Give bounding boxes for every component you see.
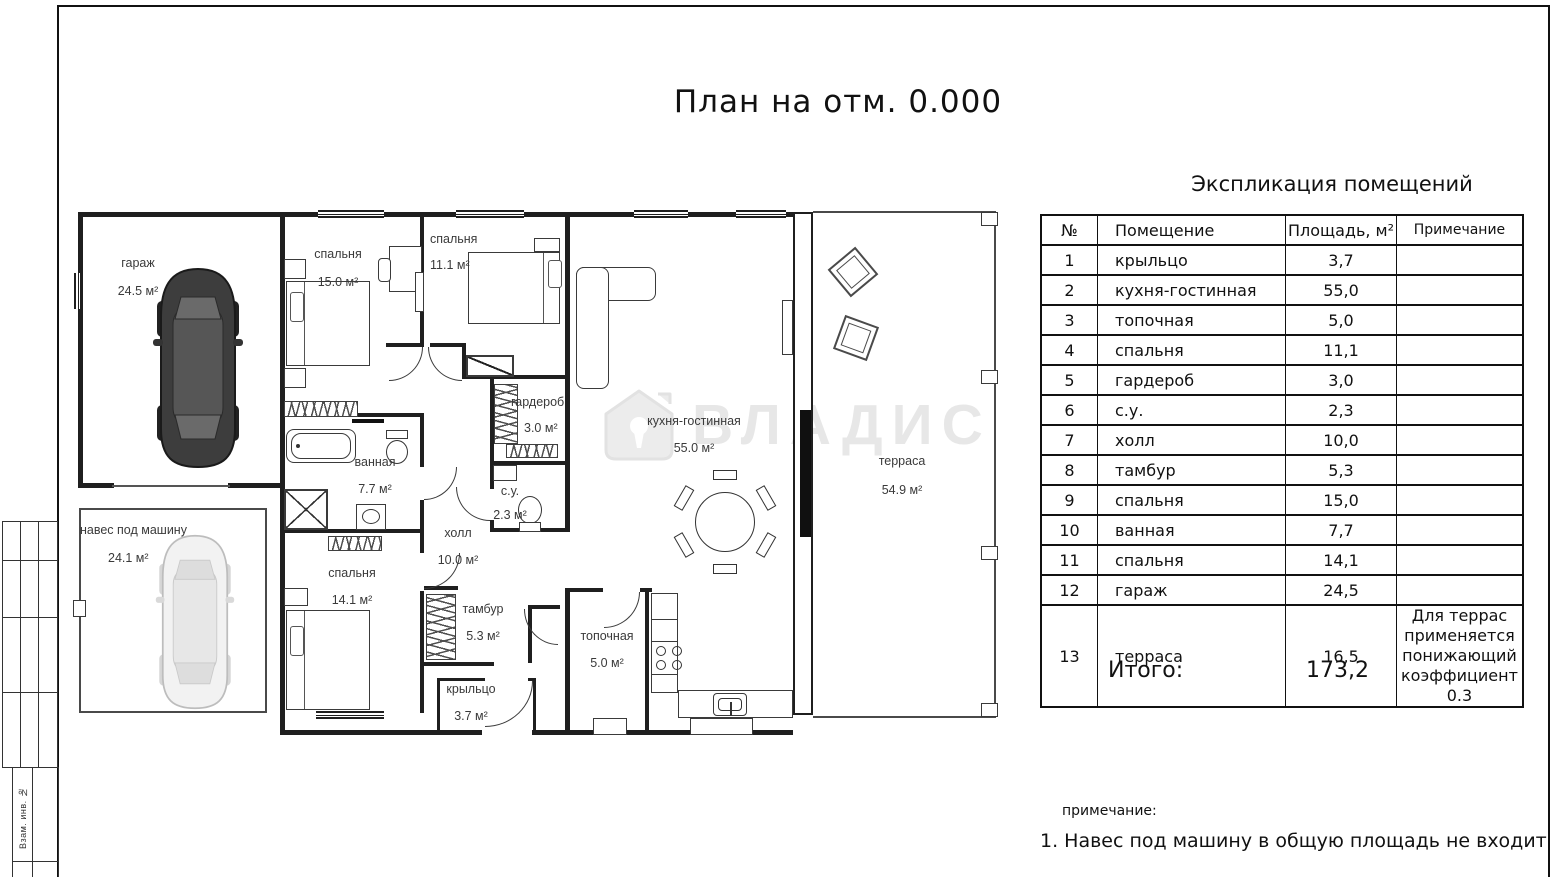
cell-room: тамбур	[1098, 455, 1286, 485]
cell-area: 14,1	[1286, 545, 1397, 575]
room-name: с.у.	[501, 485, 519, 498]
cell-num: 8	[1041, 455, 1098, 485]
wall-bath-right-a	[420, 413, 424, 467]
garage-window	[74, 273, 82, 309]
dining-chair-2	[713, 564, 737, 574]
terrace-column-3	[981, 546, 998, 560]
dining-chair-6	[674, 532, 695, 558]
note-line: 1. Навес под машину в общую площадь не в…	[1040, 830, 1547, 852]
wall-porch-right	[533, 680, 536, 730]
table-row: 2 кухня-гостинная 55,0	[1041, 275, 1523, 305]
kitchen-sink	[713, 693, 747, 716]
total-label: Итого:	[1108, 658, 1183, 683]
note-label: примечание:	[1062, 803, 1157, 819]
cell-area: 24,5	[1286, 575, 1397, 605]
table-row: 7 холл 10,0	[1041, 425, 1523, 455]
hall-cabinet	[466, 355, 514, 377]
bed-15-pillow	[290, 292, 304, 322]
dining-chair-5	[756, 532, 777, 558]
dining-chair-3	[756, 485, 777, 511]
bed-14-headboard	[304, 611, 305, 709]
room-name: спальня	[328, 567, 375, 580]
step-kitchen	[690, 718, 753, 735]
garage-wall-bottom-b	[228, 483, 285, 488]
cell-area: 15,0	[1286, 485, 1397, 515]
room-area: 2.3 м²	[493, 509, 527, 522]
table-row: 1 крыльцо 3,7	[1041, 245, 1523, 275]
window-kitchen-b	[736, 210, 786, 218]
page-title: План на отм. 0.000	[638, 84, 1038, 120]
cell-room: кухня-гостинная	[1098, 275, 1286, 305]
door-arc-boiler	[604, 592, 640, 628]
bath-pocket-door	[352, 419, 384, 423]
table-row: 9 спальня 15,0	[1041, 485, 1523, 515]
terrace-chair-1	[828, 247, 879, 298]
room-name: тамбур	[463, 603, 504, 616]
room-name: холл	[444, 527, 471, 540]
cell-num: 3	[1041, 305, 1098, 335]
room-name: топочная	[580, 630, 633, 643]
room-area: 10.0 м²	[438, 554, 479, 567]
cell-area: 55,0	[1286, 275, 1397, 305]
cell-note	[1397, 365, 1523, 395]
stamp-box-rule	[13, 861, 58, 862]
kitchen-sink-tap	[730, 702, 732, 716]
room-label-carport: навес под машину 24.1 м²	[80, 524, 210, 564]
room-name: ванная	[355, 456, 396, 469]
nightstand-15b	[284, 368, 306, 388]
wardrobe-bed15	[284, 401, 358, 417]
wall-bed14-right-b	[420, 591, 424, 713]
cell-area: 16,5	[1286, 605, 1397, 707]
car-garage	[153, 267, 243, 469]
col-header-note: Примечание	[1397, 215, 1523, 245]
bed-14	[286, 610, 370, 710]
cell-note	[1397, 335, 1523, 365]
room-area: 11.1 м²	[430, 259, 470, 272]
table-row: 8 тамбур 5,3	[1041, 455, 1523, 485]
cell-num: 5	[1041, 365, 1098, 395]
terrace-edge-right	[994, 211, 996, 718]
room-label-garage: гараж 24.5 м²	[104, 257, 172, 297]
room-area: 7.7 м²	[358, 483, 392, 496]
room-label-boiler: топочная 5.0 м²	[577, 630, 637, 669]
dining-chair-1	[713, 470, 737, 480]
drawing-sheet: Взам. инв. № План на отм. 0.000 ВЛАДИС	[0, 0, 1556, 877]
col-header-num: №	[1041, 215, 1098, 245]
step-boiler	[593, 718, 627, 735]
table-row: 13 терраса 16,5 Для террас применяется п…	[1041, 605, 1523, 707]
cell-num: 10	[1041, 515, 1098, 545]
cell-note	[1397, 575, 1523, 605]
tv-console	[782, 300, 793, 355]
cell-num: 12	[1041, 575, 1098, 605]
wall-porch-top-a	[437, 678, 485, 681]
nightstand-14	[284, 588, 308, 606]
cell-num: 11	[1041, 545, 1098, 575]
cell-room: топочная	[1098, 305, 1286, 335]
window-bedroom14	[316, 711, 384, 719]
table-row: 6 с.у. 2,3	[1041, 395, 1523, 425]
porch-entry-opening	[482, 730, 532, 735]
shower	[284, 489, 328, 530]
room-area: 15.0 м²	[318, 276, 359, 289]
room-label-hall: холл 10.0 м²	[424, 527, 492, 566]
toilet-bath-tank	[386, 430, 408, 439]
chair-15	[378, 258, 391, 282]
terrace-sliding-door	[800, 410, 811, 537]
room-name: кухня-гостинная	[647, 415, 741, 428]
cell-num: 1	[1041, 245, 1098, 275]
carport-edge-top	[79, 508, 267, 510]
fridge	[651, 593, 678, 620]
wall-kitchen-left-a	[565, 212, 570, 382]
terrace-column-4	[981, 703, 998, 717]
cell-area: 10,0	[1286, 425, 1397, 455]
col-header-area: Площадь, м²	[1286, 215, 1397, 245]
room-area: 3.0 м²	[511, 422, 558, 435]
cell-area: 3,0	[1286, 365, 1397, 395]
table-row: 10 ванная 7,7	[1041, 515, 1523, 545]
room-name: спальня	[314, 248, 361, 261]
stamp-grid	[2, 521, 57, 767]
cell-note	[1397, 545, 1523, 575]
cell-num: 4	[1041, 335, 1098, 365]
room-area: 14.1 м²	[332, 594, 373, 607]
frame-right	[1548, 5, 1550, 877]
door-arc-bed15	[389, 347, 423, 381]
room-area: 5.0 м²	[590, 657, 624, 670]
cell-room: крыльцо	[1098, 245, 1286, 275]
room-area: 3.7 м²	[454, 710, 488, 723]
cell-room: с.у.	[1098, 395, 1286, 425]
cell-num: 13	[1041, 605, 1098, 707]
window-kitchen-a	[634, 210, 688, 218]
cell-area: 3,7	[1286, 245, 1397, 275]
room-label-tambour: тамбур 5.3 м²	[455, 603, 511, 642]
carport-edge-right	[265, 508, 267, 713]
window-bedroom11	[456, 210, 524, 218]
cell-room: спальня	[1098, 485, 1286, 515]
dining-table	[695, 492, 755, 552]
table-row: 11 спальня 14,1	[1041, 545, 1523, 575]
radiator-bed11	[415, 272, 424, 312]
carport-edge-bottom	[79, 711, 267, 713]
terrace-column-1	[981, 212, 998, 226]
explication-table: № Помещение Площадь, м² Примечание 1 кры…	[1040, 214, 1524, 708]
wardrobe-tambour	[426, 594, 456, 660]
table-row: 4 спальня 11,1	[1041, 335, 1523, 365]
total-value: 173,2	[1306, 658, 1369, 683]
cell-note	[1397, 425, 1523, 455]
bed-14-pillow	[290, 626, 304, 656]
wardrobe-bed14	[328, 536, 382, 551]
room-label-wardrobe: гардероб 3.0 м²	[511, 396, 575, 434]
terrace-edge-top	[813, 211, 996, 213]
cell-note	[1397, 275, 1523, 305]
cell-room: спальня	[1098, 335, 1286, 365]
stamp-vertical-label: Взам. инв. №	[14, 776, 32, 860]
cell-num: 6	[1041, 395, 1098, 425]
room-name: гардероб	[511, 396, 564, 409]
cell-area: 7,7	[1286, 515, 1397, 545]
cell-num: 7	[1041, 425, 1098, 455]
sink-wc	[493, 465, 517, 481]
bed-11-headboard	[543, 253, 544, 323]
garage-door-line	[112, 485, 230, 487]
cell-area: 2,3	[1286, 395, 1397, 425]
cell-area: 5,0	[1286, 305, 1397, 335]
garage-wall-top	[78, 212, 285, 217]
nightstand-11	[534, 238, 560, 252]
cell-room: холл	[1098, 425, 1286, 455]
room-area: 54.9 м²	[882, 484, 923, 497]
stamp-box: Взам. инв. №	[12, 767, 59, 877]
dining-chair-4	[674, 485, 695, 511]
table-row: 3 топочная 5,0	[1041, 305, 1523, 335]
room-label-bathroom: ванная 7.7 м²	[339, 456, 411, 495]
table-row: 5 гардероб 3,0	[1041, 365, 1523, 395]
room-name: навес под машину	[80, 524, 187, 537]
room-name: гараж	[121, 257, 155, 270]
wall-porch-left	[437, 678, 440, 730]
sofa-body	[576, 267, 609, 389]
room-label-bedroom14: спальня 14.1 м²	[316, 567, 388, 606]
wall-boiler-right	[645, 588, 649, 730]
room-name: спальня	[430, 233, 477, 246]
stove	[651, 641, 678, 675]
terrace-chair-2	[833, 315, 879, 361]
room-area: 55.0 м²	[674, 442, 715, 455]
bed-15-headboard	[304, 282, 305, 365]
room-label-terrace: терраса 54.9 м²	[871, 455, 933, 496]
room-area: 24.1 м²	[80, 552, 149, 565]
bathtub-drain	[296, 444, 300, 448]
room-label-bedroom11: спальня 11.1 м²	[430, 233, 500, 271]
room-label-wc: с.у. 2.3 м²	[484, 485, 536, 521]
room-label-kitchen: кухня-гостинная 55.0 м²	[644, 415, 744, 454]
frame-top	[57, 5, 1550, 7]
room-label-bedroom15: спальня 15.0 м²	[300, 248, 376, 288]
col-header-room: Помещение	[1098, 215, 1286, 245]
toilet-wc-tank	[519, 522, 541, 532]
room-name: крыльцо	[446, 683, 495, 696]
cell-num: 2	[1041, 275, 1098, 305]
terrace-column-2	[981, 370, 998, 384]
house-wall-left	[280, 212, 285, 735]
door-arc-bed11	[428, 347, 462, 381]
table-row: 12 гараж 24,5	[1041, 575, 1523, 605]
cell-area: 5,3	[1286, 455, 1397, 485]
cell-room: гараж	[1098, 575, 1286, 605]
room-area: 5.3 м²	[466, 630, 500, 643]
cell-room: терраса	[1098, 605, 1286, 707]
cell-num: 9	[1041, 485, 1098, 515]
cell-note	[1397, 245, 1523, 275]
window-bedroom15	[318, 210, 384, 218]
cell-room: ванная	[1098, 515, 1286, 545]
bed-11-pillow	[548, 260, 562, 288]
room-area: 24.5 м²	[118, 285, 159, 298]
cell-note	[1397, 395, 1523, 425]
wall-boiler-top-a	[565, 588, 603, 592]
door-arc-bath	[424, 467, 457, 500]
wall-tambour-bottom	[424, 662, 494, 666]
table-header-row: № Помещение Площадь, м² Примечание	[1041, 215, 1523, 245]
explication-title: Экспликация помещений	[1182, 172, 1482, 196]
room-name: терраса	[879, 455, 926, 468]
cell-note	[1397, 305, 1523, 335]
cell-note	[1397, 485, 1523, 515]
cell-note	[1397, 515, 1523, 545]
garage-wall-bottom-a	[78, 483, 114, 488]
cell-room: спальня	[1098, 545, 1286, 575]
cell-note: Для террас применяется понижающий коэффи…	[1397, 605, 1523, 707]
cell-room: гардероб	[1098, 365, 1286, 395]
cell-note	[1397, 455, 1523, 485]
room-label-porch: крыльцо 3.7 м²	[443, 683, 499, 722]
sink-bath-bowl	[362, 509, 380, 524]
terrace-edge-bottom	[813, 716, 996, 718]
carport-column	[73, 600, 86, 617]
cell-area: 11,1	[1286, 335, 1397, 365]
wall-kitchen-left-c	[565, 590, 570, 735]
garage-wall-left	[78, 212, 83, 488]
wardrobe-closet-shelf	[506, 444, 558, 458]
